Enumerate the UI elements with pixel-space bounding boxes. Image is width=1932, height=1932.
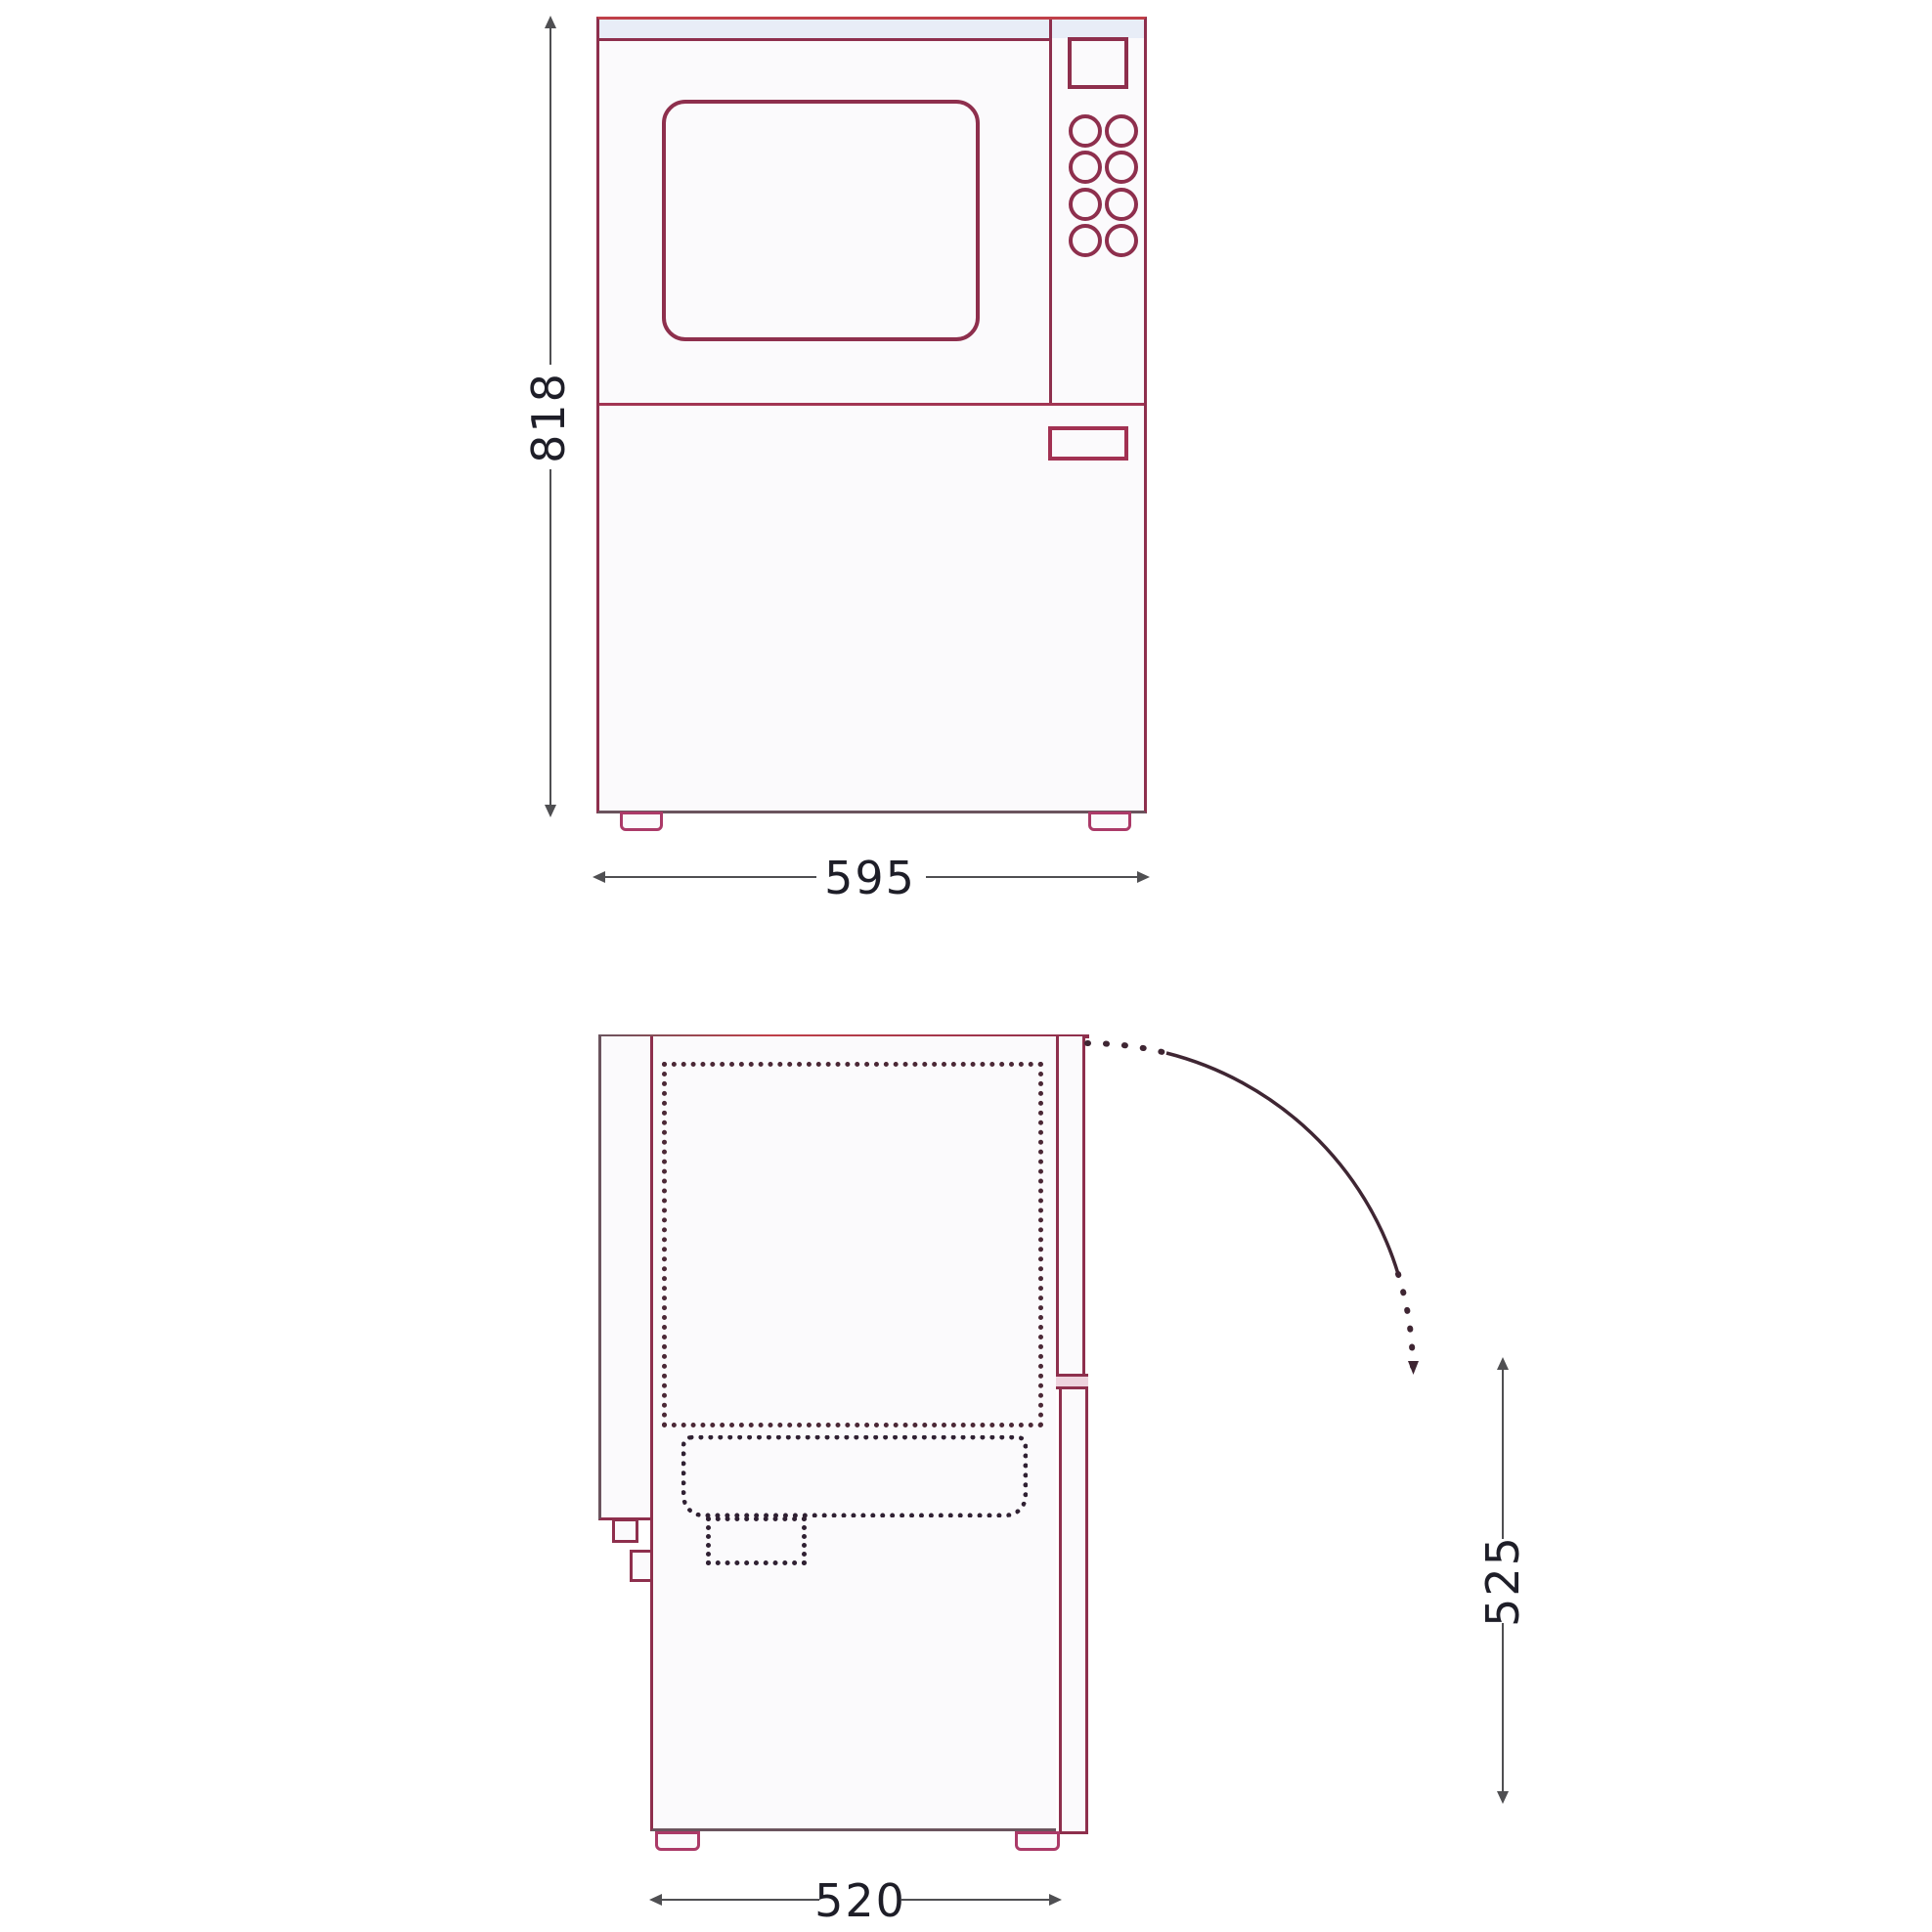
back-connector-upper	[612, 1518, 638, 1543]
front-foot-right	[1088, 812, 1131, 831]
control-panel-display	[1068, 37, 1128, 89]
side-door-upper	[1056, 1036, 1085, 1374]
control-button	[1069, 151, 1102, 184]
control-button	[1105, 224, 1138, 257]
back-panel	[598, 1036, 653, 1520]
control-button	[1105, 114, 1138, 148]
cabinet-divider-line	[599, 403, 1144, 406]
side-door-lower	[1059, 1389, 1088, 1834]
arrow-up-icon	[545, 16, 556, 28]
arrow-down-icon	[545, 805, 556, 817]
dimension-line	[926, 876, 1144, 878]
diagram-canvas: 818 595	[0, 0, 1932, 1932]
arrow-down-icon	[1497, 1791, 1509, 1804]
control-button	[1105, 151, 1138, 184]
front-foot-left	[620, 812, 663, 831]
dimension-value: 525	[1480, 1535, 1525, 1627]
control-button	[1069, 188, 1102, 221]
top-vent-strip	[599, 20, 1144, 38]
dimension-line	[901, 1899, 1056, 1901]
dimension-line	[1502, 1623, 1504, 1799]
arrow-left-icon	[649, 1894, 662, 1906]
control-button	[1069, 114, 1102, 148]
dimension-value: 520	[814, 1878, 906, 1923]
arrow-right-icon	[1137, 871, 1150, 883]
top-vent-strip-line	[599, 38, 1049, 41]
side-foot-right	[1015, 1831, 1060, 1851]
dimension-line	[549, 22, 551, 365]
microwave-door-window	[662, 100, 980, 341]
control-button	[1069, 224, 1102, 257]
arrow-right-icon	[1049, 1894, 1062, 1906]
dimension-value: 818	[526, 372, 571, 463]
control-panel-divider	[1049, 20, 1052, 403]
arrow-up-icon	[1497, 1357, 1509, 1370]
side-door-hinge-band	[1056, 1374, 1088, 1389]
dimension-line	[598, 876, 816, 878]
arrow-left-icon	[593, 871, 605, 883]
side-foot-left	[655, 1831, 700, 1851]
dimension-line	[655, 1899, 819, 1901]
cavity-outline-dashed	[662, 1062, 1043, 1427]
dimension-line	[549, 469, 551, 811]
lower-recess-dashed	[681, 1435, 1028, 1517]
small-recess-dashed	[706, 1516, 807, 1565]
dimension-value: 595	[824, 856, 916, 900]
lower-door-handle	[1048, 426, 1128, 461]
control-button	[1105, 188, 1138, 221]
dimension-line	[1502, 1363, 1504, 1539]
